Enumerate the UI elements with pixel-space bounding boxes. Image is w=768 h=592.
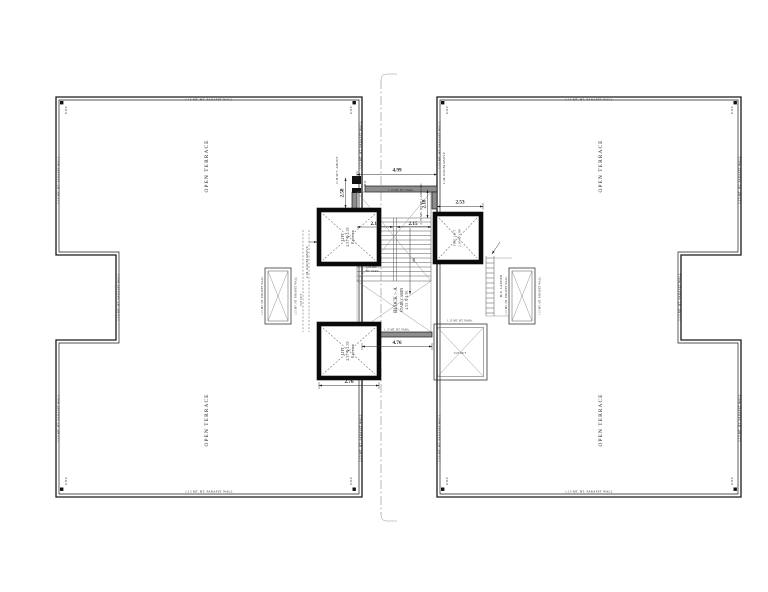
dim-left-height: 2.58 (340, 188, 346, 197)
right-x-shaft: 1.15 MT. HT. PARAPET WALL 1.15 MT. HT. P… (505, 268, 542, 324)
parapet-label: 1.15 MT. HT. PARAPET WALL (437, 414, 441, 462)
lift-bottom-left: LIFT 2.57 X 2.39 8 person (319, 324, 379, 378)
lift1-capacity: 8 person (351, 230, 355, 244)
parapet-label: 1.15 MT. HT. PARAPET WALL (57, 156, 61, 204)
lift-top-left: LIFT 2.57 X 2.39 8 person (319, 210, 379, 264)
lm-room-label-right: L.M. ROOM ABOVE (442, 152, 446, 184)
ohwt-label: O.H.W.T. ABOVE (335, 156, 339, 183)
parapet-label: 1.15 MT. HT. PARAPET WALL (117, 273, 121, 321)
cutout-side-label: CUT OUT (300, 294, 303, 307)
stair-para-label-2: HT. PARA. (366, 270, 380, 273)
parapet-label: 1.15 MT. HT. PARAPET WALL (185, 490, 233, 494)
right-return-wall (432, 192, 437, 209)
rwp-label: R.W.P. (446, 106, 449, 114)
bottom-wall-label: 1.15 MT. HT. PARA. (384, 329, 410, 332)
parapet-label: 1.15 MT. HT. PARAPET WALL (359, 121, 363, 169)
parapet-label: 1.15 MT. HT. PARAPET WALL (565, 98, 613, 102)
metal-door-label: M.D. (364, 180, 367, 186)
lm-room-label: L.M. ROOM ABOVE (305, 246, 309, 278)
open-terrace-top-right: OPEN TERRACE (598, 139, 604, 192)
open-terrace-bottom-left: OPEN TERRACE (204, 393, 210, 446)
block-name: BLOCK :- A (394, 287, 399, 313)
right-terrace-outline (437, 97, 741, 497)
parapet-label: 1.15 MT. HT. PARAPET WALL (57, 394, 61, 442)
parapet-label: 1.15 MT. HT. PARAPET WALL (359, 414, 363, 462)
dim-flight-a: 2.15 (370, 221, 379, 227)
rwp-label: R.W.P. (446, 477, 449, 485)
ms-ladder-label: M.S. LADDER (499, 274, 503, 297)
right-shaft-label-b: 1.15 MT. HT. PARAPET WALL (539, 276, 542, 315)
dim-lift-width: 2.76 (344, 379, 353, 385)
floor-plan-page: 1.15 MT. HT. PARA. M.D. dn 2.15 MT. WIDE… (0, 0, 768, 592)
cutout-top-label: 1.15 MT. HT. PARA. (447, 320, 473, 323)
rwp-label: R.W.P. (350, 106, 353, 114)
dim-bottom-width: 4.76 (392, 340, 401, 346)
parapet-label: 1.15 MT. HT. PARAPET WALL (677, 273, 681, 321)
lm-room: L.M. ROOM ABOVE CUT OUT (300, 230, 317, 332)
left-shaft-label-b: 1.15 MT. HT. PARAPET WALL (295, 276, 298, 315)
fire-lift-size: 2.05 X 1.98 (458, 229, 462, 247)
fire-lift: FIRE LIFT 2.05 X 1.98 (435, 214, 481, 262)
lift1-size: 2.57 X 2.39 (346, 227, 350, 246)
floor-plan-svg: 1.15 MT. HT. PARA. M.D. dn 2.15 MT. WIDE… (0, 0, 768, 592)
parapet-label: 1.15 MT. HT. PARAPET WALL (185, 98, 233, 102)
lift1-name: LIFT (341, 232, 345, 241)
block-title: BLOCK :- A STAIR CABIN 4.53 X 1.93 (394, 287, 409, 313)
left-shaft-label-a: 1.15 MT. HT. PARAPET WALL (261, 276, 264, 315)
parapet-label: 1.15 MT. HT. PARAPET WALL (737, 394, 741, 442)
lift2-size: 2.57 X 2.39 (346, 341, 350, 360)
rwp-label: R.W.P. (731, 477, 734, 485)
open-terrace-bottom-right: OPEN TERRACE (598, 393, 604, 446)
dn-label: dn (412, 258, 416, 262)
lift2-capacity: 8 person (351, 344, 355, 358)
rwp-label: R.W.P. (65, 477, 68, 485)
top-wall-label: 1.15 MT. HT. PARA. (388, 189, 414, 192)
dim-top-width: 4.99 (392, 168, 401, 174)
stair-cabin-size: 4.53 X 1.93 (405, 290, 409, 309)
parapet-labels: 1.15 MT. HT. PARAPET WALL 1.15 MT. HT. P… (57, 98, 742, 494)
left-x-shaft: 1.15 MT. HT. PARAPET WALL 1.15 MT. HT. P… (261, 268, 298, 324)
ms-ladder: M.S. LADDER (486, 242, 512, 316)
stair-cabin-label: STAIR CABIN (400, 288, 404, 313)
cutout-shaft: CUT OUT 1.15 MT. HT. PARA. (434, 320, 487, 381)
dim-flight-b: 2.15 (408, 221, 417, 227)
dim-fire-lift-width: 2.53 (455, 200, 464, 206)
fire-lift-name: FIRE LIFT (453, 230, 457, 247)
door-icon (352, 176, 361, 184)
dim-right-height: 2.18 (422, 199, 428, 208)
lift2-name: LIFT (341, 346, 345, 355)
parapet-label: 1.15 MT. HT. PARAPET WALL (737, 156, 741, 204)
rwp-label: R.W.P. (65, 106, 68, 114)
rwp-label: R.W.P. (350, 477, 353, 485)
right-shaft-label-a: 1.15 MT. HT. PARAPET WALL (505, 276, 508, 315)
stair-para-label-1: 1.15 MT. (366, 266, 377, 269)
parapet-label: 1.15 MT. HT. PARAPET WALL (437, 121, 441, 169)
cutout-center-label: CUT OUT (454, 352, 467, 355)
parapet-label: 1.15 MT. HT. PARAPET WALL (565, 490, 613, 494)
open-terrace-labels: OPEN TERRACE OPEN TERRACE OPEN TERRACE O… (204, 139, 604, 446)
open-terrace-top-left: OPEN TERRACE (204, 139, 210, 192)
left-return-wall (352, 192, 357, 209)
rwp-label: R.W.P. (731, 106, 734, 114)
